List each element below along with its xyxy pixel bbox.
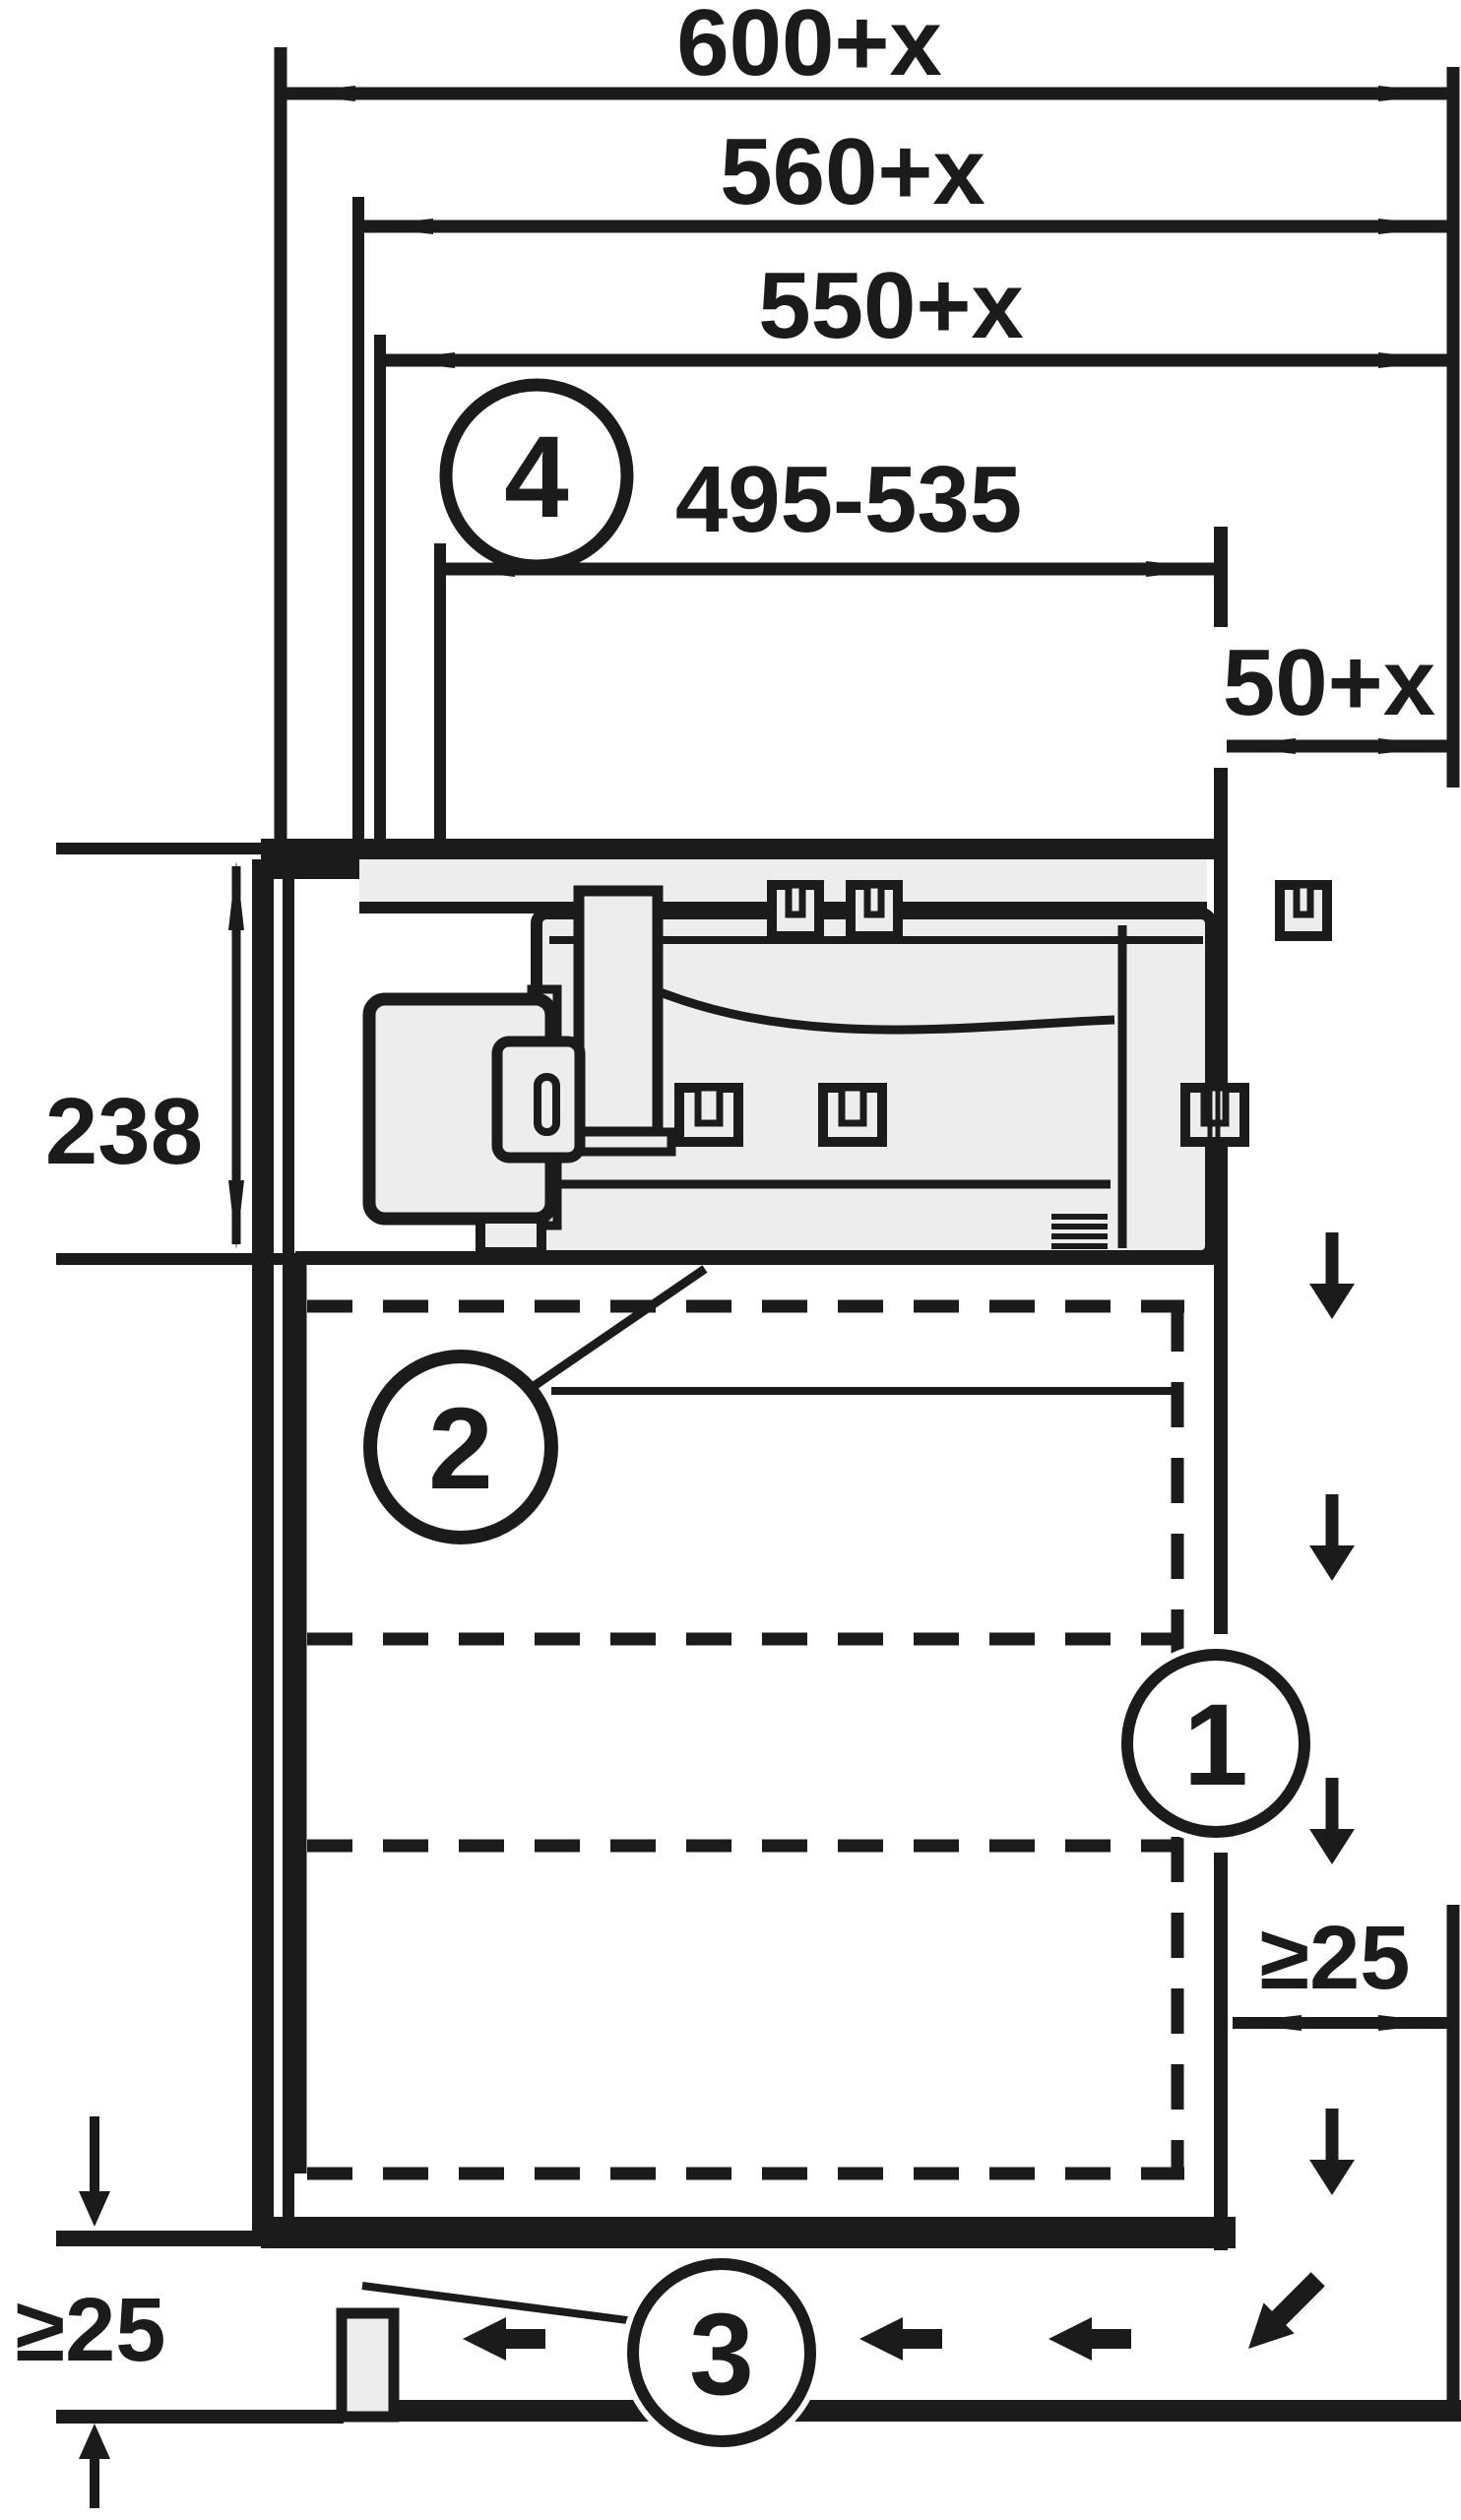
callout-3: 3 <box>362 2252 822 2453</box>
dimension-label-550: 550+x <box>758 253 1024 358</box>
dimension-rear-clearance: ≥25 <box>1233 1908 1447 2031</box>
installation-diagram: 600+x 560+x 550+x 495-535 50+x 4 <box>0 0 1461 2520</box>
airflow-left-arrow-icon <box>1048 2317 1131 2361</box>
base-clip-slot <box>1204 1088 1226 1123</box>
hanger-slot <box>1297 885 1310 914</box>
bottom-witness-extension <box>56 1253 295 1265</box>
dimension-label-238: 238 <box>45 1079 203 1184</box>
dimension-label-rear-gap: 50+x <box>1223 630 1435 735</box>
callout-2-number: 2 <box>428 1384 493 1514</box>
appliance <box>56 885 1327 1265</box>
cabinet-left-wall <box>252 859 294 2246</box>
appliance-column <box>579 891 658 1132</box>
arrowhead-down-icon <box>79 2191 110 2227</box>
worktop-cutout-edge <box>261 859 359 879</box>
arrowhead-up-icon <box>79 2424 110 2459</box>
dimension-label-cutout: 495-535 <box>675 447 1022 552</box>
dimension-label-rear-clearance: ≥25 <box>1260 1908 1411 2008</box>
plinth-panel <box>342 2313 394 2417</box>
airflow-down-arrows <box>1309 1232 1355 2195</box>
cabinet-left-wall-inner <box>283 859 294 2246</box>
callout-4: 4 <box>446 385 627 566</box>
dimension-238: 238 <box>45 861 244 1249</box>
airflow-diagonal-arrow-icon <box>1233 2264 1333 2364</box>
airflow-down-arrow-icon <box>1309 1494 1355 1581</box>
door-handle-slot <box>538 1077 556 1132</box>
worktop-top-line <box>261 839 1221 859</box>
airflow-down-arrow-icon <box>1309 1778 1355 1864</box>
dimension-label-600: 600+x <box>676 0 942 95</box>
cabinet-bottom-shelf <box>261 2217 1236 2248</box>
base-clip-slot <box>842 1088 863 1123</box>
dimension-600: 600+x <box>286 0 1447 101</box>
appliance-bottom-line <box>295 1251 1221 1265</box>
dimension-550: 550+x <box>386 253 1447 368</box>
shelf-witness-extension <box>56 2231 263 2246</box>
dimension-label-plinth-clearance: ≥25 <box>16 2280 166 2380</box>
dimension-plinth-clearance: ≥25 <box>16 2116 166 2508</box>
cabinet-left-wall-outer <box>252 859 274 2246</box>
base-clip-slot <box>698 1088 720 1123</box>
door-bottom-tab <box>480 1219 541 1252</box>
floor-line-thin <box>56 2410 344 2424</box>
callout-1: 1 <box>1115 1643 1316 1844</box>
worktop-witness-extension <box>56 843 263 854</box>
dimension-560: 560+x <box>364 119 1447 234</box>
plinth <box>342 2313 394 2417</box>
callout-2-leader <box>530 1269 705 1389</box>
hanger-slot <box>789 885 802 914</box>
callout-4-number: 4 <box>504 412 569 542</box>
arrowhead-up-icon <box>228 861 244 930</box>
airflow-left-arrow-icon <box>463 2317 545 2361</box>
airflow-down-arrow-icon <box>1309 2109 1355 2195</box>
callout-3-number: 3 <box>689 2290 754 2420</box>
airflow-left-arrow-icon <box>859 2317 942 2361</box>
dimension-rear-gap: 50+x <box>1223 630 1447 754</box>
airflow-down-arrow-icon <box>1309 1232 1355 1319</box>
hanger-slot <box>867 885 881 914</box>
floor-line <box>342 2400 1461 2422</box>
dimension-label-560: 560+x <box>720 119 985 224</box>
callout-1-number: 1 <box>1183 1680 1248 1810</box>
arrowhead-down-icon <box>228 1180 244 1249</box>
